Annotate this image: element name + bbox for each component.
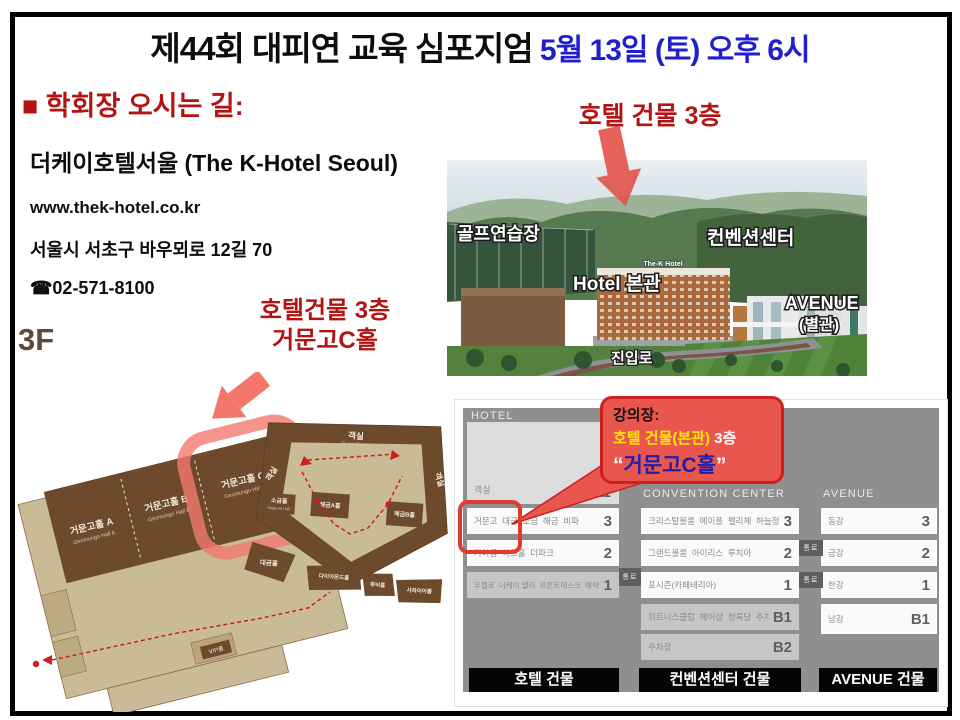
avenue-b1-row: 남강 B1 — [821, 604, 937, 634]
avenue-floor3-number: 3 — [922, 513, 930, 530]
floorplan-callout-line2: 거문고C홀 — [212, 326, 438, 356]
photo-annex-roof — [461, 288, 565, 296]
floorplan-floor-label: 3F — [18, 322, 54, 358]
convention-b1-row: 휘트니스클럽 헤어샵 청록당 주차장 B1 — [641, 604, 799, 630]
hotel-address: 서울시 서초구 바우뫼로 12길 70 — [30, 236, 398, 262]
hotel-upper-floors-block: 객실 5 - 11 — [467, 422, 619, 504]
lecture-hall-callout: 강의장: 호텔 건물(본관) 3층 “거문고C홀” — [600, 396, 784, 484]
convention-floor1-names: 포시즌(카페테리아) — [648, 579, 716, 591]
photo-label-golf: 골프연습장 — [457, 224, 540, 244]
floorplan-callout-label: 호텔건물 3층 거문고C홀 — [212, 296, 438, 356]
photo-annex-building — [461, 288, 565, 348]
directory-convention-header: CONVENTION CENTER — [643, 488, 785, 500]
avenue-floor2-row: 금강 2 — [821, 540, 937, 566]
convention-floor2-number: 2 — [784, 545, 792, 562]
callout-hall-name: 거문고C홀 — [624, 454, 716, 477]
photo-label-avenue-sub: (별관) — [799, 316, 839, 334]
directory-hotel-header: HOTEL — [471, 410, 514, 422]
passage-badge-avenue1: 통로 — [799, 572, 823, 588]
convention-floor1-row: 포시즌(카페테리아) 1 — [641, 572, 799, 598]
callout-line3: “거문고C홀” — [613, 449, 771, 479]
convention-floor3-row: 크리스탈볼룸 메이플 펠리체 하늘정원 3 — [641, 508, 799, 534]
avenue-floor3-names: 동강 — [828, 515, 844, 527]
hotel-floor1-names: 우첼로 더케이 델리 프론트데스크 예약실 — [474, 580, 600, 591]
photo-label-hotel-main: Hotel 본관 — [573, 273, 661, 295]
presentation-slide: 제44회 대피연 교육 심포지엄 5월 13일 (토) 오후 6시 ■ 학회장 … — [0, 0, 960, 720]
callout-line1: 강의장: — [613, 404, 771, 425]
convention-b2-number: B2 — [773, 639, 792, 656]
avenue-floor3-row: 동강 3 — [821, 508, 937, 534]
convention-floor1-number: 1 — [784, 577, 792, 594]
hotel-floor1-row: 우첼로 더케이 델리 프론트데스크 예약실 1 — [467, 572, 619, 598]
avenue-building-bar: AVENUE 건물 — [819, 668, 937, 692]
title-main: 제44회 대피연 교육 심포지엄 — [150, 30, 532, 67]
convention-floor3-names: 크리스탈볼룸 메이플 펠리체 하늘정원 — [648, 515, 780, 527]
geomungo-highlight-box — [458, 500, 522, 554]
passage-badge-hotel: 통로 — [619, 568, 641, 586]
convention-b1-number: B1 — [773, 609, 792, 626]
photo-label-avenue: AVENUE — [785, 293, 859, 313]
title-date: 5월 13일 (토) 오후 6시 — [533, 34, 810, 67]
callout-quote-open: “ — [613, 454, 624, 477]
hotel-name: 더케이호텔서울 (The K-Hotel Seoul) — [30, 144, 398, 178]
callout-line2: 호텔 건물(본관) 3층 — [613, 427, 771, 448]
hotel-website: www.thek-hotel.co.kr — [30, 198, 398, 218]
avenue-b1-names: 남강 — [828, 613, 844, 625]
hotel-floor2-number: 2 — [604, 545, 612, 562]
hotel-floor1-number: 1 — [604, 577, 612, 594]
building-directory-panel: HOTEL 객실 5 - 11 거문고 대금 소금 해금 비파 3 가야금 아트… — [455, 400, 947, 706]
avenue-floor1-number: 1 — [922, 577, 930, 594]
photo-label-driveway: 진입로 — [611, 350, 653, 367]
hotel-guest-room-floors: 5 - 11 — [573, 484, 611, 501]
callout-floor: 3층 — [710, 430, 736, 447]
avenue-floor1-row: 한강 1 — [821, 572, 937, 598]
passage-badge-avenue2: 통로 — [799, 540, 823, 556]
photo-hotel-sign: The-K Hotel — [643, 261, 682, 268]
hotel-building-bar: 호텔 건물 — [469, 668, 619, 692]
directory-avenue-header: AVENUE — [823, 488, 875, 500]
hotel-floor3-number: 3 — [604, 513, 612, 530]
red-arrow-down-icon — [575, 124, 675, 224]
plan-label-guestroom-top: 객실 — [348, 430, 364, 441]
convention-b1-names: 휘트니스클럽 헤어샵 청록당 주차장 — [648, 611, 769, 623]
convention-floor2-names: 그랜드볼룸 아이리스 루치아 — [648, 547, 751, 559]
floorplan-callout-line1: 호텔건물 3층 — [212, 296, 438, 326]
avenue-b1-number: B1 — [911, 611, 930, 628]
convention-b2-row: 주차장 B2 — [641, 634, 799, 660]
convention-floor3-number: 3 — [784, 513, 792, 530]
convention-floor2-row: 그랜드볼룸 아이리스 루치아 2 — [641, 540, 799, 566]
callout-quote-close: ” — [716, 454, 727, 477]
avenue-floor2-names: 금강 — [828, 547, 844, 559]
convention-b2-names: 주차장 — [648, 641, 671, 653]
callout-building: 호텔 건물(본관) — [613, 430, 710, 447]
slide-title: 제44회 대피연 교육 심포지엄 5월 13일 (토) 오후 6시 — [40, 22, 920, 70]
section-heading: ■ 학회장 오시는 길: — [22, 84, 244, 123]
hotel-guest-room-label: 객실 — [474, 483, 491, 496]
convention-building-bar: 컨벤션센터 건물 — [639, 668, 801, 692]
hotel-info: 더케이호텔서울 (The K-Hotel Seoul) www.thek-hot… — [30, 144, 398, 299]
avenue-floor2-number: 2 — [922, 545, 930, 562]
photo-label-convention: 컨벤션센터 — [707, 227, 794, 249]
hotel-floorplan-map: 거문고홀 A Geomungo Hall A 거문고홀 B Geomungo H… — [12, 372, 448, 717]
avenue-floor1-names: 한강 — [828, 579, 844, 591]
